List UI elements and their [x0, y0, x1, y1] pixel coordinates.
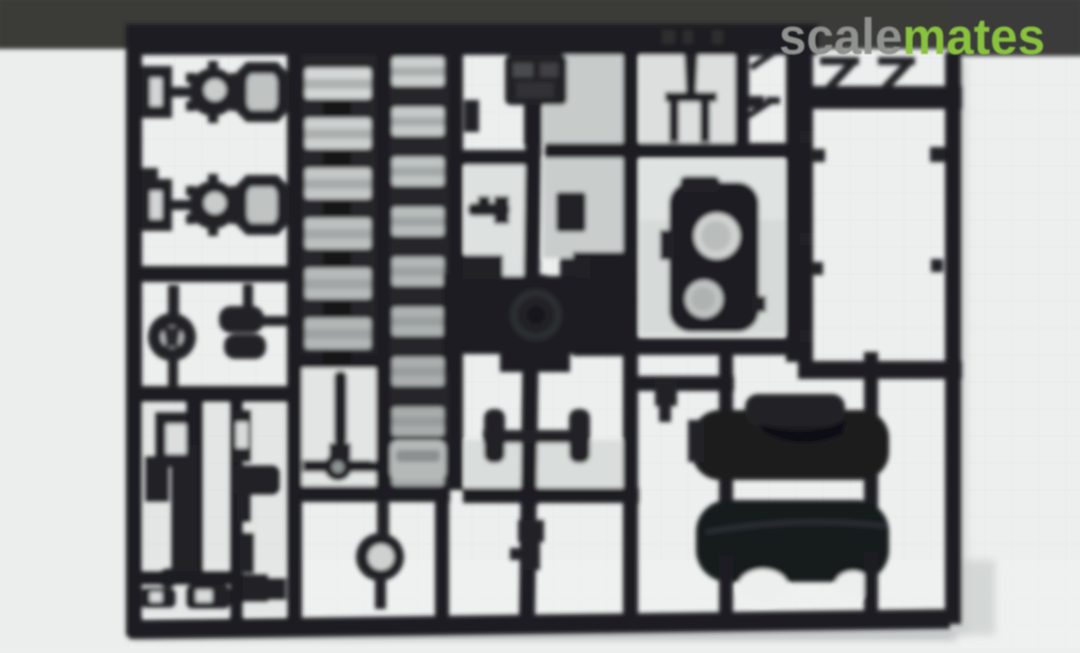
- svg-text:scalemates: scalemates: [779, 8, 1045, 65]
